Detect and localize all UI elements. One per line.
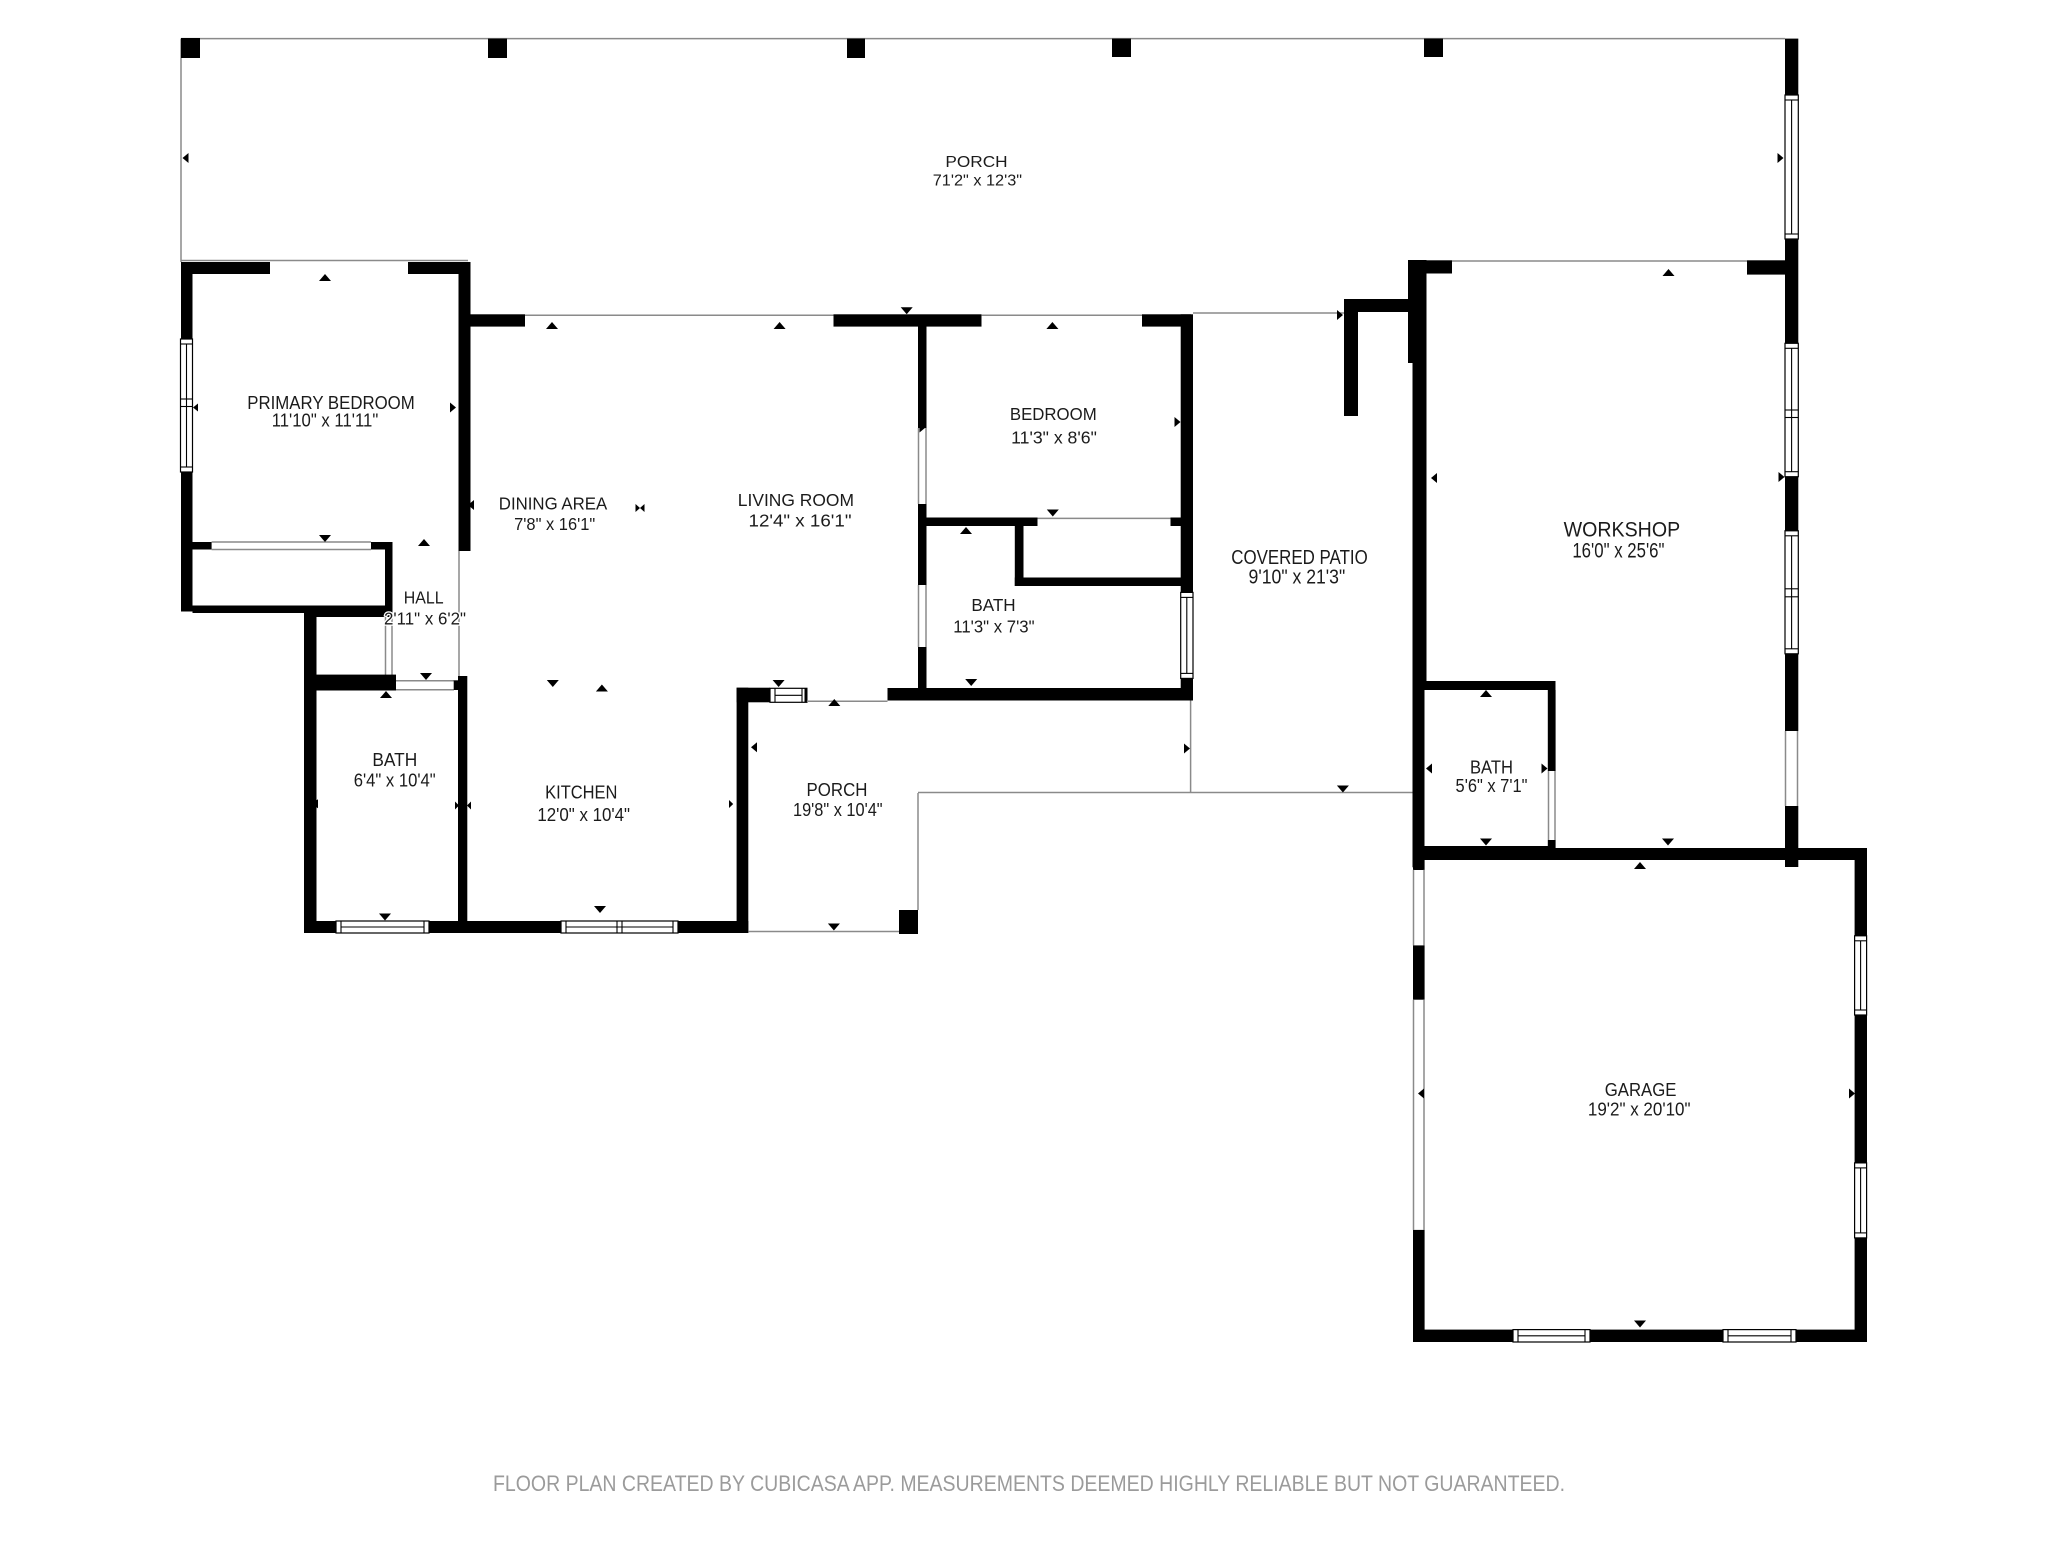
svg-text:BEDROOM: BEDROOM xyxy=(1010,404,1097,424)
svg-text:5'6" x 7'1": 5'6" x 7'1" xyxy=(1456,776,1528,796)
svg-text:7'8" x 16'1": 7'8" x 16'1" xyxy=(514,514,595,534)
svg-text:BATH: BATH xyxy=(372,749,417,770)
svg-text:GARAGE: GARAGE xyxy=(1605,1079,1677,1100)
svg-text:19'8" x 10'4": 19'8" x 10'4" xyxy=(793,799,883,820)
svg-text:71'2" x 12'3": 71'2" x 12'3" xyxy=(933,172,1022,189)
svg-text:BATH: BATH xyxy=(1470,757,1513,777)
svg-text:WORKSHOP: WORKSHOP xyxy=(1564,519,1681,542)
svg-text:DINING AREA: DINING AREA xyxy=(499,493,608,513)
svg-text:PORCH: PORCH xyxy=(807,779,868,800)
svg-text:12'4" x 16'1": 12'4" x 16'1" xyxy=(749,510,852,530)
svg-text:LIVING ROOM: LIVING ROOM xyxy=(738,490,854,510)
svg-text:PORCH: PORCH xyxy=(945,154,1007,171)
svg-text:KITCHEN: KITCHEN xyxy=(545,781,617,802)
svg-text:BATH: BATH xyxy=(971,595,1015,615)
svg-text:11'3" x 7'3": 11'3" x 7'3" xyxy=(953,617,1034,637)
svg-text:2'11" x 6'2": 2'11" x 6'2" xyxy=(384,609,466,629)
svg-text:6'4" x 10'4": 6'4" x 10'4" xyxy=(354,770,436,791)
svg-text:12'0" x 10'4": 12'0" x 10'4" xyxy=(537,804,630,825)
svg-text:FLOOR PLAN CREATED BY CUBICASA: FLOOR PLAN CREATED BY CUBICASA APP. MEAS… xyxy=(493,1471,1565,1496)
svg-text:19'2" x 20'10": 19'2" x 20'10" xyxy=(1588,1099,1691,1120)
svg-text:11'10" x 11'11": 11'10" x 11'11" xyxy=(272,409,379,430)
svg-text:HALL: HALL xyxy=(404,588,444,608)
svg-text:11'3" x 8'6": 11'3" x 8'6" xyxy=(1011,428,1097,448)
svg-text:16'0" x 25'6": 16'0" x 25'6" xyxy=(1572,539,1664,562)
svg-text:9'10" x 21'3": 9'10" x 21'3" xyxy=(1249,565,1346,588)
